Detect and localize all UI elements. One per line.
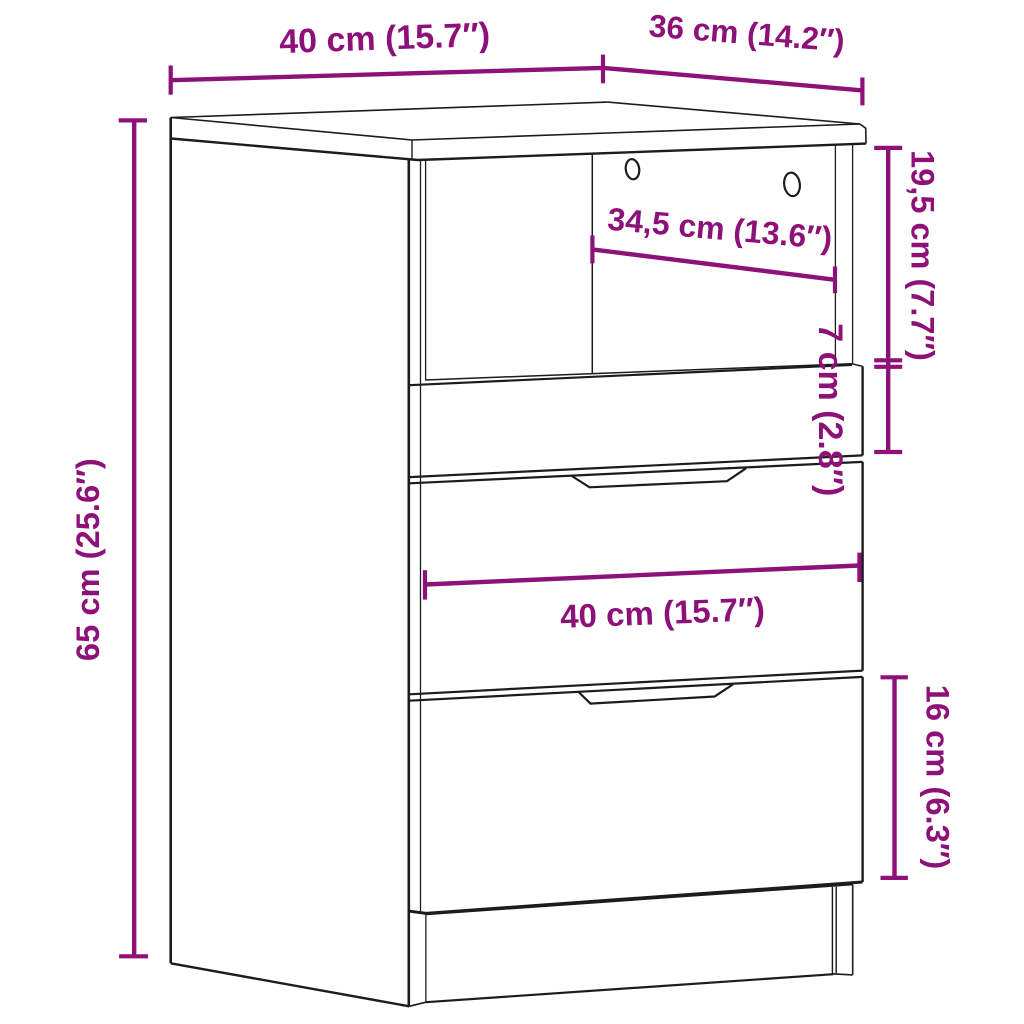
svg-text:19,5 cm (7.7″): 19,5 cm (7.7″) <box>905 150 941 361</box>
svg-text:40 cm (15.7″): 40 cm (15.7″) <box>279 16 491 61</box>
svg-text:7 cm (2.8″): 7 cm (2.8″) <box>811 323 849 496</box>
svg-text:65 cm (25.6″): 65 cm (25.6″) <box>69 458 106 661</box>
svg-text:40 cm (15.7″): 40 cm (15.7″) <box>560 590 766 635</box>
svg-text:16 cm (6.3″): 16 cm (6.3″) <box>920 685 957 870</box>
